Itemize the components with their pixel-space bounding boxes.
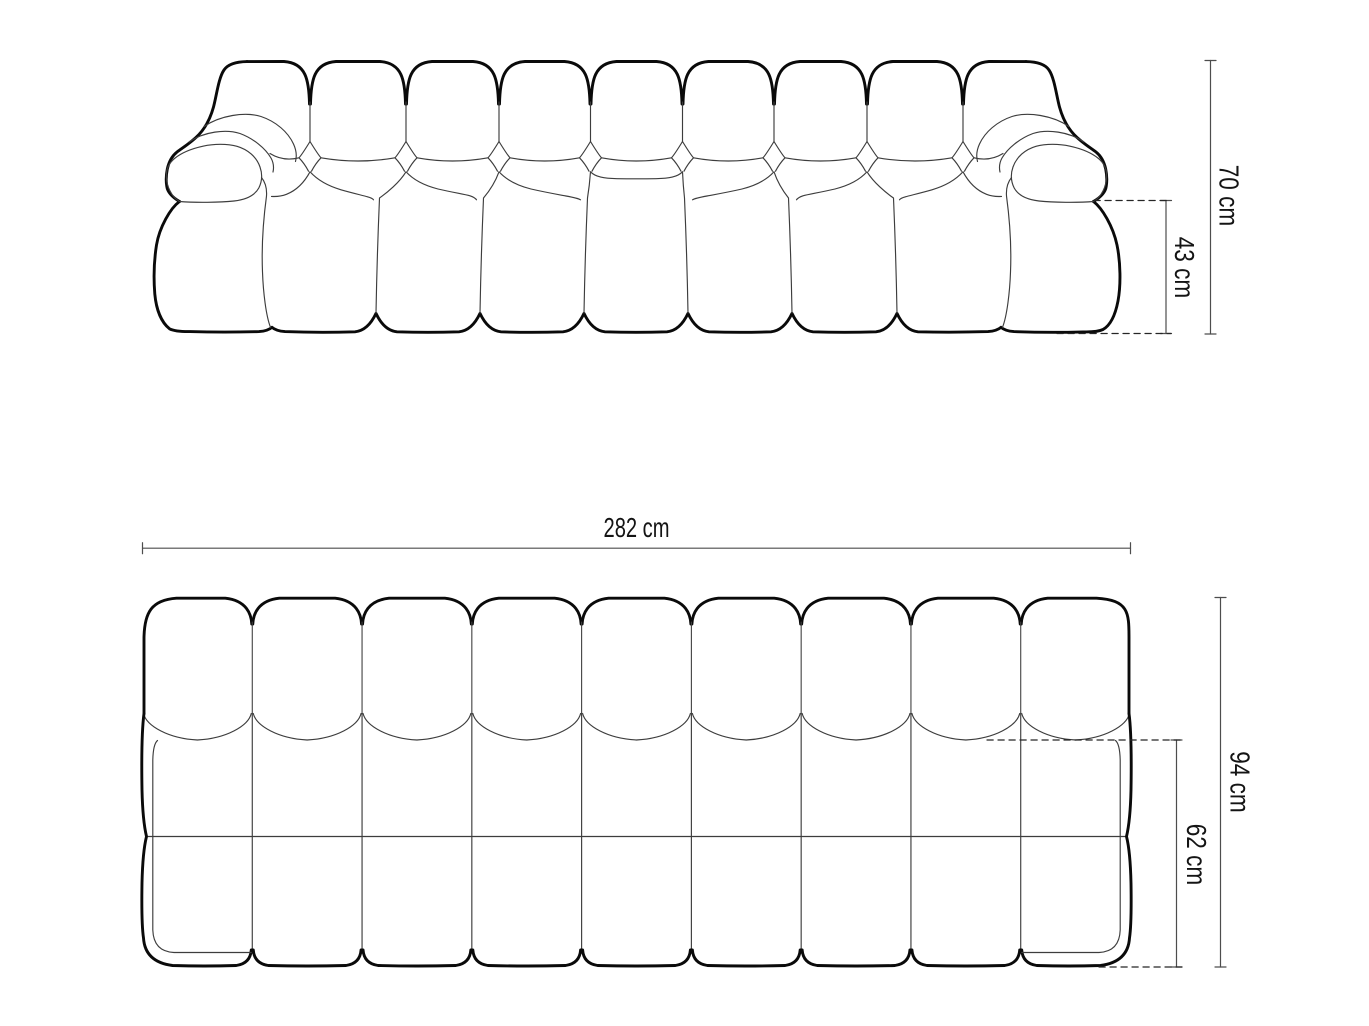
- svg-text:62 cm: 62 cm: [1181, 824, 1212, 886]
- svg-text:43 cm: 43 cm: [1169, 237, 1200, 299]
- svg-text:282 cm: 282 cm: [604, 512, 670, 543]
- svg-text:94 cm: 94 cm: [1225, 751, 1256, 813]
- svg-text:70 cm: 70 cm: [1214, 165, 1245, 227]
